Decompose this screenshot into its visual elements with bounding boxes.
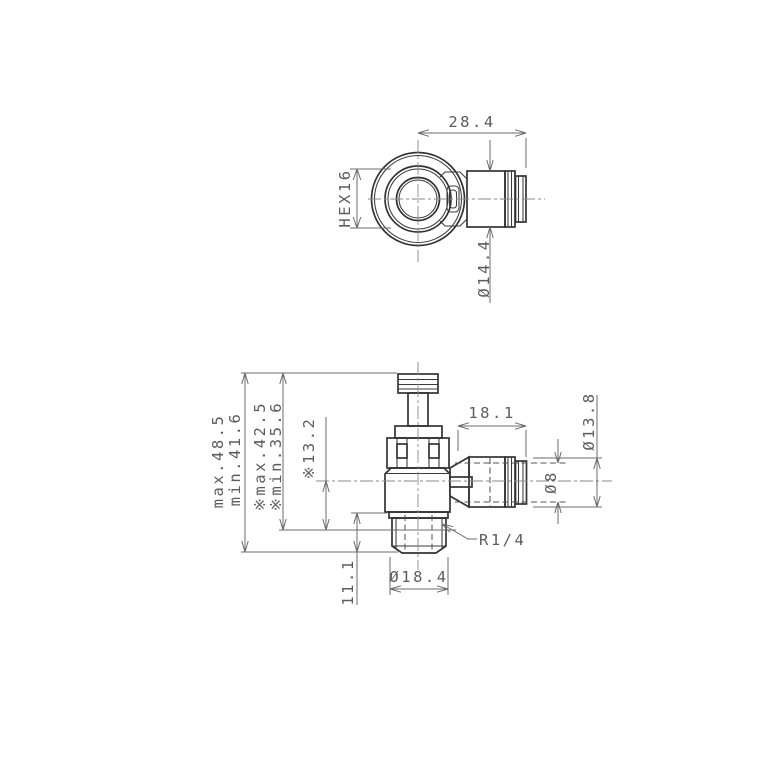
dim-top-diameter-label: Ø14.4: [475, 238, 493, 297]
dim-fitting-length-lines: [458, 426, 526, 457]
dim-overall-height: max.48.5 min.41.6: [209, 373, 248, 552]
collar-lines: [519, 461, 524, 504]
fitting-ring-lines: [508, 457, 512, 507]
valve-body: [385, 468, 450, 512]
dim-center-height: ※13.2: [300, 417, 329, 530]
dim-thread-od: Ø18.4: [389, 557, 448, 595]
thread-outline: [392, 518, 446, 553]
dim-thread-length-label: 11.1: [339, 558, 357, 605]
dim-center-height-label: ※13.2: [300, 417, 318, 480]
dim-thread-od-label: Ø18.4: [389, 568, 448, 586]
dim-hex-label: HEX16: [336, 168, 354, 227]
lock-nut-slot-left: [397, 444, 407, 458]
dim-hex: HEX16: [336, 168, 391, 228]
dim-width-label: 28.4: [448, 113, 495, 131]
dim-thread-length: 11.1: [339, 513, 360, 606]
top-view: 28.4 HEX16 Ø14.4: [336, 113, 545, 303]
thread-spec-leader: [442, 524, 477, 539]
dim-tube-bore: Ø8: [542, 439, 561, 524]
dim-overall-max-label: max.48.5: [209, 414, 227, 509]
technical-drawing: 28.4 HEX16 Ø14.4: [0, 0, 768, 768]
body-outline: [385, 468, 450, 512]
dim-installed-min-label: ※min.35.6: [267, 401, 285, 511]
lock-nut-slot-right: [429, 444, 439, 458]
thread-spec-callout: R1/4: [442, 524, 526, 549]
fitting-cylinder: [469, 457, 505, 507]
drawing-canvas: 28.4 HEX16 Ø14.4: [0, 0, 768, 768]
release-collar: [516, 461, 527, 504]
dim-fitting-od-label: Ø13.8: [580, 391, 598, 450]
thread-detail-lines: [392, 518, 446, 549]
thread-spec-arrow: [442, 524, 453, 532]
adjustment-knob: [395, 374, 442, 438]
dim-width: 28.4: [418, 113, 526, 168]
thread-washer: [389, 512, 448, 518]
side-fitting: [450, 457, 527, 507]
thread-spec-label: R1/4: [479, 531, 526, 549]
dim-installed-height: ※max.42.5 ※min.35.6: [251, 373, 286, 530]
male-thread: [389, 512, 448, 553]
dim-width-lines: [418, 133, 526, 168]
dim-top-diameter: Ø14.4: [475, 140, 493, 303]
dim-overall-min-label: min.41.6: [226, 412, 244, 507]
dim-fitting-length: 18.1: [458, 404, 526, 457]
fitting-ring-band: [505, 457, 515, 507]
front-view: max.48.5 min.41.6 ※max.42.5 ※min.35.6 ※1…: [209, 362, 612, 606]
dim-fitting-length-label: 18.1: [468, 404, 515, 422]
knob-flange: [395, 426, 442, 438]
dim-tube-bore-label: Ø8: [542, 470, 560, 494]
